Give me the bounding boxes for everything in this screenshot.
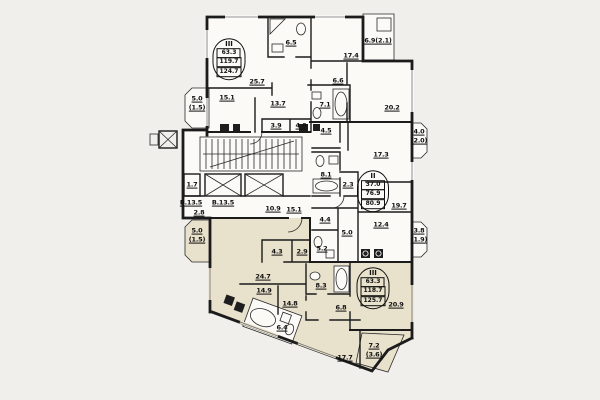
apartment-rooms-count: III (369, 270, 377, 277)
room-area-label: 5.0 (192, 228, 203, 235)
room-area-label: (1.9) (411, 237, 427, 244)
room-area-label: 5.2 (317, 246, 328, 253)
room-area-label: 20.9 (388, 302, 403, 309)
room-area-label: 25.7 (249, 79, 264, 86)
room-area-label: В.13.5 (180, 200, 202, 207)
room-area-label: 10.9 (265, 206, 280, 213)
room-area-label: (1.5) (189, 105, 205, 112)
room-area-label: 6.9(2.1) (364, 38, 391, 45)
room-area-label: 4.4 (320, 217, 331, 224)
room-area-label: 15.1 (286, 207, 301, 214)
apartment-area-value: 125.7 (361, 296, 386, 306)
room-area-label: 13.7 (270, 101, 285, 108)
room-area-label: 4.5 (321, 128, 332, 135)
room-area-label: 12.4 (373, 222, 388, 229)
room-area-label: 6.8 (336, 305, 347, 312)
room-area-label: В.13.5 (212, 200, 234, 207)
room-area-label: 2.8 (194, 210, 205, 217)
apartment-stamp: III63.3118.7125.7 (357, 267, 390, 309)
room-area-label: 14.8 (282, 301, 297, 308)
room-area-label: 6.5 (286, 40, 297, 47)
room-area-label: 2.3 (343, 182, 354, 189)
apartment-rooms-count: III (225, 41, 233, 48)
floor-plan-page: 25.715.113.76.53.94.05.0(1.5)17.46.9(2.1… (0, 0, 600, 400)
apartment-area-value: 124.7 (217, 67, 242, 77)
room-area-label: 2.9 (297, 249, 308, 256)
room-area-label: 5.0 (192, 96, 203, 103)
room-area-label: 7.1 (320, 102, 331, 109)
room-area-label: 4.3 (272, 249, 283, 256)
room-area-label: (3.6) (366, 352, 382, 359)
apartment-area-value: 80.9 (361, 199, 385, 209)
room-area-label: 19.7 (391, 203, 406, 210)
room-area-label: (2.0) (411, 138, 427, 145)
apartment-stamp: II37.076.980.9 (357, 170, 389, 212)
room-area-label: 6.4 (277, 325, 288, 332)
room-area-label: 17.3 (373, 152, 388, 159)
room-area-label: 17.7 (337, 355, 352, 362)
room-area-label: 6.6 (333, 78, 344, 85)
room-area-label: 1.7 (187, 182, 198, 189)
apartment-stamp: III63.3119.7124.7 (213, 38, 246, 80)
room-area-label: 15.1 (219, 95, 234, 102)
room-area-label: (1.5) (189, 237, 205, 244)
room-area-label: 5.0 (342, 230, 353, 237)
room-area-label: 14.9 (256, 288, 271, 295)
room-area-label: 24.7 (255, 274, 270, 281)
labels-layer: 25.715.113.76.53.94.05.0(1.5)17.46.9(2.1… (0, 0, 600, 400)
apartment-rooms-count: II (370, 173, 375, 180)
room-area-label: 8.3 (316, 283, 327, 290)
room-area-label: 4.0 (296, 123, 307, 130)
room-area-label: 8.1 (321, 172, 332, 179)
room-area-label: 3.9 (271, 123, 282, 130)
room-area-label: 3.8 (414, 228, 425, 235)
room-area-label: 17.4 (343, 53, 358, 60)
room-area-label: 20.2 (384, 105, 399, 112)
room-area-label: 4.0 (414, 129, 425, 136)
room-area-label: 7.2 (369, 343, 380, 350)
